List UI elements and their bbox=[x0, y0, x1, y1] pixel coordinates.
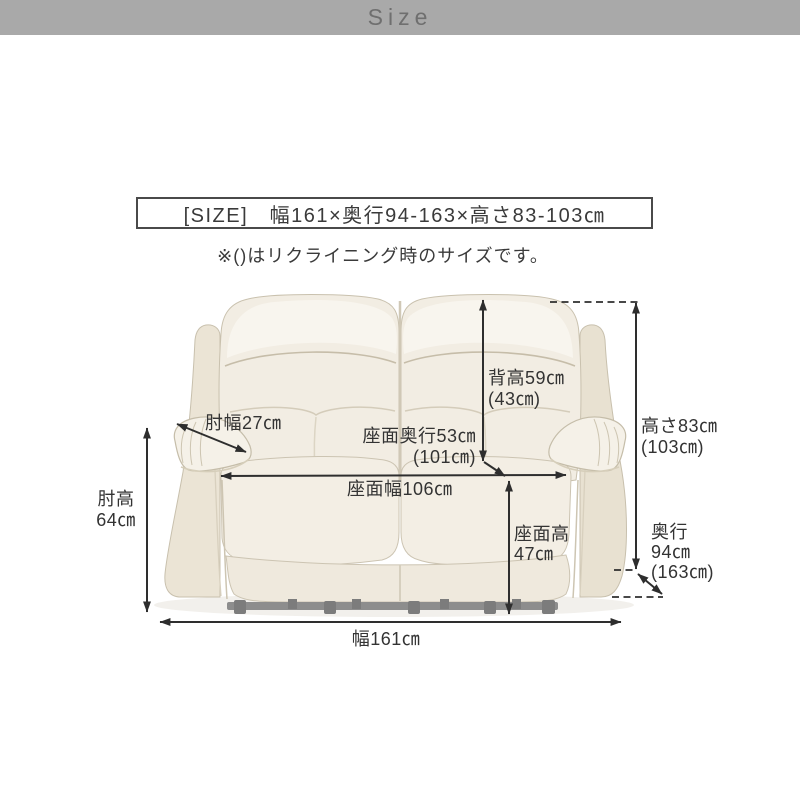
label-seat-width-line1: 座面幅106㎝ bbox=[347, 479, 453, 500]
label-armrest-height: 肘高 64㎝ bbox=[84, 489, 148, 531]
label-overall-height-line1: 高さ83㎝ bbox=[641, 416, 718, 437]
label-seat-height: 座面高 47㎝ bbox=[514, 524, 570, 564]
label-armrest-width-line1: 肘幅27㎝ bbox=[205, 413, 282, 434]
label-back-height: 背高59㎝ (43㎝) bbox=[488, 368, 565, 410]
sofa-illustration bbox=[0, 0, 800, 800]
sofa-dimension-figure: 背高59㎝ (43㎝) 高さ83㎝ (103㎝) 肘幅27㎝ 肘高 64㎝ 座面… bbox=[0, 0, 800, 800]
label-armrest-width: 肘幅27㎝ bbox=[205, 413, 282, 434]
label-seat-depth: 座面奥行53㎝ (101㎝) bbox=[296, 426, 476, 468]
label-overall-height: 高さ83㎝ (103㎝) bbox=[641, 416, 718, 458]
label-back-height-line2: (43㎝) bbox=[488, 389, 565, 410]
label-seat-height-line2: 47㎝ bbox=[514, 544, 570, 564]
label-overall-width-line1: 幅161㎝ bbox=[296, 629, 476, 650]
label-back-height-line1: 背高59㎝ bbox=[488, 368, 565, 389]
label-depth-line1: 奥行 bbox=[651, 522, 714, 542]
label-armrest-height-line2: 64㎝ bbox=[84, 510, 148, 531]
label-seat-depth-line2: (101㎝) bbox=[296, 447, 476, 468]
label-armrest-height-line1: 肘高 bbox=[84, 489, 148, 510]
label-depth: 奥行 94㎝ (163㎝) bbox=[651, 522, 714, 582]
label-depth-line3: (163㎝) bbox=[651, 562, 714, 582]
label-seat-depth-line1: 座面奥行53㎝ bbox=[296, 426, 476, 447]
label-depth-line2: 94㎝ bbox=[651, 542, 714, 562]
label-seat-height-line1: 座面高 bbox=[514, 524, 570, 544]
label-overall-width: 幅161㎝ bbox=[296, 629, 476, 650]
label-seat-width: 座面幅106㎝ bbox=[347, 479, 453, 500]
label-overall-height-line2: (103㎝) bbox=[641, 437, 718, 458]
